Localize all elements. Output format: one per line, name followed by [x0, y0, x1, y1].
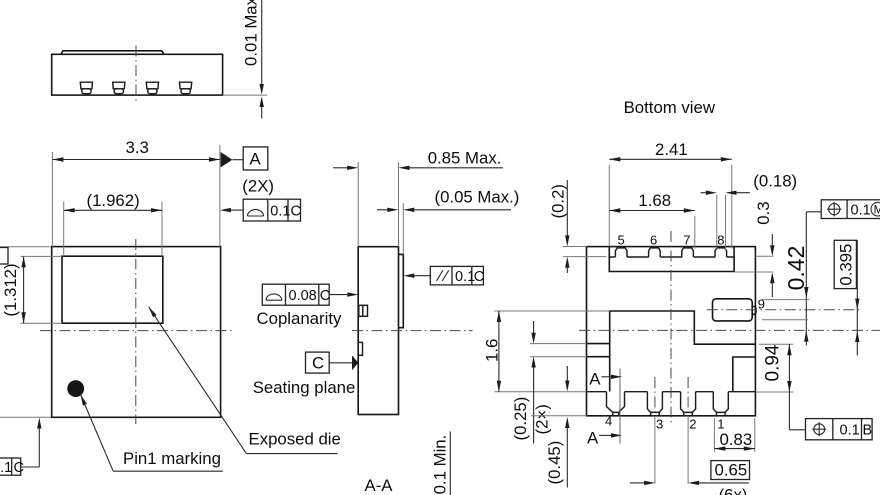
svg-text:0.42: 0.42	[783, 246, 809, 291]
svg-text:0.3: 0.3	[754, 201, 773, 224]
svg-text:1.68: 1.68	[638, 191, 671, 210]
svg-text:(2×): (2×)	[533, 404, 552, 434]
svg-text:8: 8	[717, 232, 724, 247]
svg-text:9: 9	[758, 296, 765, 311]
svg-text:7: 7	[683, 232, 690, 247]
svg-text:2: 2	[689, 416, 696, 431]
svg-text:0.395: 0.395	[836, 244, 855, 286]
svg-text:6: 6	[650, 232, 657, 247]
svg-text:(0.45): (0.45)	[545, 441, 564, 485]
svg-text:Seating plane: Seating plane	[253, 378, 356, 397]
svg-text:0.1: 0.1	[840, 422, 860, 438]
svg-text:0.83: 0.83	[720, 430, 753, 449]
svg-text:2.41: 2.41	[655, 140, 688, 159]
svg-text:M: M	[874, 205, 880, 217]
svg-text:Pin1 marking: Pin1 marking	[123, 449, 221, 468]
svg-text:(0.25): (0.25)	[511, 397, 530, 441]
svg-text:0.1: 0.1	[455, 269, 475, 285]
svg-text:C: C	[474, 269, 484, 285]
svg-text:0.1 Min.: 0.1 Min.	[431, 435, 450, 495]
svg-text:A: A	[587, 428, 599, 447]
svg-text:0.1: 0.1	[270, 203, 290, 219]
svg-text:1.6: 1.6	[483, 339, 502, 362]
svg-text:Exposed die: Exposed die	[249, 429, 341, 448]
svg-text:A: A	[250, 150, 262, 169]
svg-text:A-A: A-A	[365, 476, 394, 495]
svg-text:B: B	[863, 422, 873, 438]
svg-text:0.65: 0.65	[715, 461, 748, 480]
svg-text:C: C	[291, 203, 301, 219]
svg-text:C: C	[320, 288, 330, 304]
svg-text:Bottom view: Bottom view	[624, 98, 716, 117]
svg-text:(1.962): (1.962)	[87, 191, 140, 210]
svg-text:0.01 Max.: 0.01 Max.	[242, 0, 261, 66]
svg-text:Coplanarity: Coplanarity	[257, 309, 342, 328]
svg-text:(1.312): (1.312)	[1, 263, 20, 316]
svg-text:0.08: 0.08	[289, 288, 317, 304]
svg-text:(0.05 Max.): (0.05 Max.)	[435, 187, 520, 206]
svg-text:(0.18): (0.18)	[753, 172, 797, 191]
svg-text:0.1: 0.1	[0, 460, 12, 476]
svg-text:(2X): (2X)	[242, 176, 274, 195]
svg-text:3: 3	[656, 416, 663, 431]
svg-text:3.3: 3.3	[126, 138, 149, 157]
svg-text:(0.2): (0.2)	[549, 184, 568, 219]
svg-text:(6x): (6x)	[719, 485, 748, 495]
svg-text:0.1: 0.1	[851, 202, 871, 218]
svg-text:5: 5	[618, 232, 625, 247]
svg-text:0.85 Max.: 0.85 Max.	[428, 149, 502, 168]
svg-text:A: A	[589, 369, 601, 388]
svg-text:0.94: 0.94	[762, 344, 783, 381]
svg-text:4: 4	[605, 413, 612, 428]
svg-text:C: C	[14, 460, 24, 476]
svg-text:C: C	[312, 354, 324, 373]
